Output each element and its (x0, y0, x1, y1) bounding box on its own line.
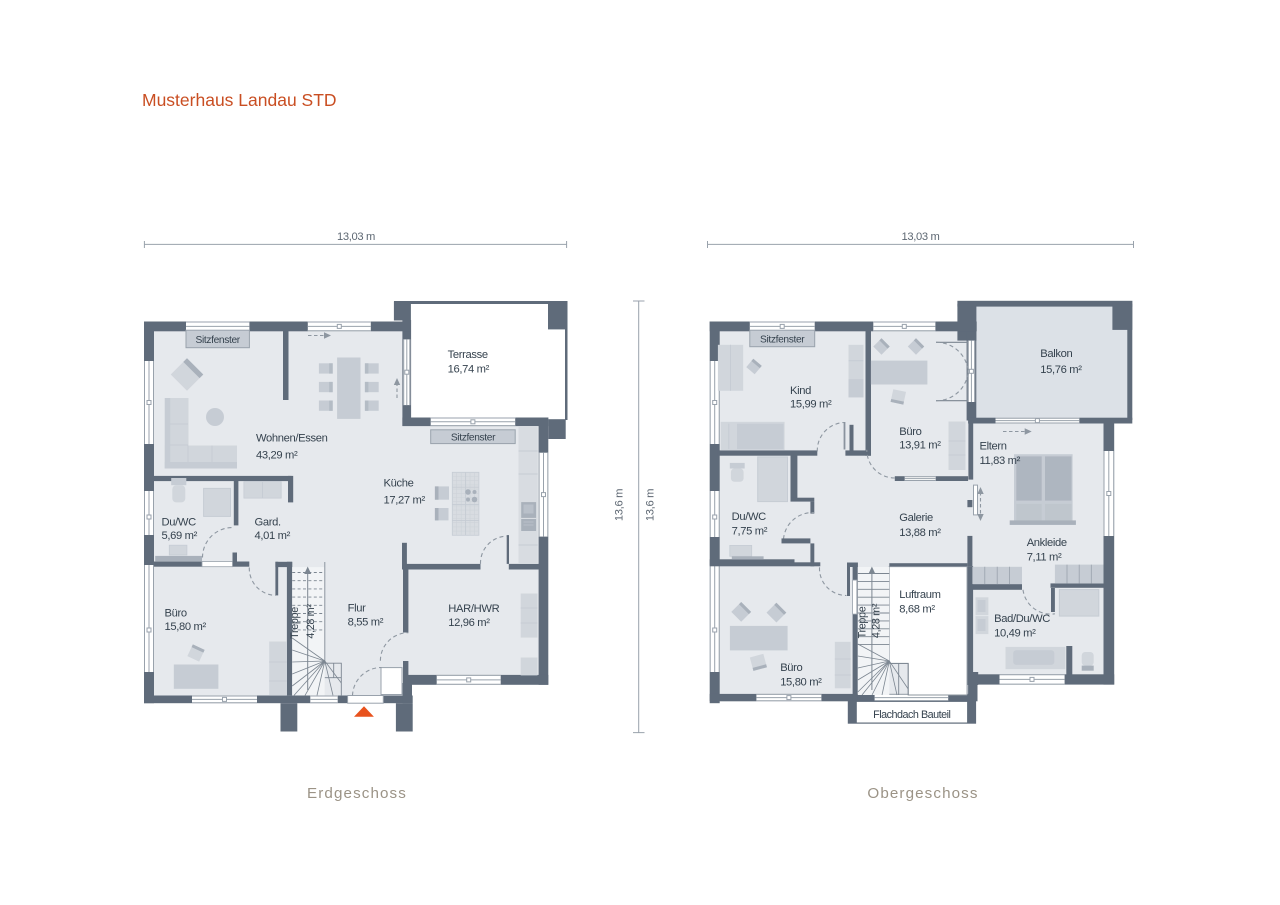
svg-text:Gard.: Gard. (255, 517, 281, 529)
svg-text:Musterhaus Landau STD: Musterhaus Landau STD (142, 90, 337, 110)
svg-text:7,75 m²: 7,75 m² (732, 526, 768, 538)
svg-text:Terrasse: Terrasse (448, 349, 488, 361)
svg-text:13,88 m²: 13,88 m² (899, 527, 941, 539)
svg-text:Sitzfenster: Sitzfenster (760, 335, 805, 346)
svg-text:Sitzfenster: Sitzfenster (196, 335, 241, 346)
svg-text:Bad/Du/WC: Bad/Du/WC (994, 613, 1050, 625)
svg-text:10,49 m²: 10,49 m² (994, 628, 1036, 640)
svg-text:15,80 m²: 15,80 m² (780, 677, 822, 689)
svg-text:15,99 m²: 15,99 m² (790, 399, 832, 411)
svg-text:13,03 m: 13,03 m (902, 231, 940, 243)
svg-text:8,68 m²: 8,68 m² (899, 604, 935, 616)
svg-text:Küche: Küche (384, 478, 414, 490)
svg-text:Wohnen/Essen: Wohnen/Essen (256, 433, 328, 445)
svg-text:13,03 m: 13,03 m (337, 231, 375, 243)
svg-text:4,01 m²: 4,01 m² (255, 530, 291, 542)
svg-text:13,6 m: 13,6 m (614, 489, 626, 521)
svg-text:Büro: Büro (165, 608, 187, 620)
svg-text:4,28 m²: 4,28 m² (871, 603, 883, 638)
svg-text:8,55 m²: 8,55 m² (348, 617, 384, 629)
svg-text:Büro: Büro (780, 662, 802, 674)
svg-text:Galerie: Galerie (899, 512, 933, 524)
svg-text:Treppe: Treppe (289, 607, 301, 639)
svg-text:Kind: Kind (790, 385, 811, 397)
svg-text:12,96 m²: 12,96 m² (448, 617, 490, 629)
svg-text:Treppe: Treppe (857, 606, 869, 638)
svg-text:7,11 m²: 7,11 m² (1027, 552, 1062, 564)
svg-text:Eltern: Eltern (980, 441, 1007, 453)
svg-text:11,83 m²: 11,83 m² (980, 455, 1021, 467)
svg-text:HAR/HWR: HAR/HWR (448, 603, 499, 615)
svg-text:Büro: Büro (899, 426, 921, 438)
svg-text:Flachdach Bauteil: Flachdach Bauteil (873, 709, 950, 721)
svg-text:43,29 m²: 43,29 m² (256, 450, 298, 462)
svg-text:15,80 m²: 15,80 m² (165, 621, 207, 633)
svg-text:Du/WC: Du/WC (162, 517, 197, 529)
svg-text:5,69 m²: 5,69 m² (162, 530, 198, 542)
svg-text:15,76 m²: 15,76 m² (1040, 364, 1082, 376)
svg-text:13,6 m: 13,6 m (645, 489, 657, 521)
svg-text:Obergeschoss: Obergeschoss (867, 785, 978, 802)
svg-text:Luftraum: Luftraum (899, 589, 940, 601)
svg-text:4,28 m²: 4,28 m² (305, 604, 317, 639)
svg-text:Ankleide: Ankleide (1027, 537, 1067, 549)
svg-text:Balkon: Balkon (1040, 348, 1072, 360)
svg-text:13,91 m²: 13,91 m² (899, 440, 941, 452)
svg-text:Sitzfenster: Sitzfenster (451, 432, 496, 443)
svg-text:Du/WC: Du/WC (732, 511, 767, 523)
svg-text:17,27 m²: 17,27 m² (384, 495, 426, 507)
svg-text:Erdgeschoss: Erdgeschoss (307, 785, 407, 802)
svg-text:Flur: Flur (348, 603, 366, 615)
svg-text:16,74 m²: 16,74 m² (448, 364, 490, 376)
